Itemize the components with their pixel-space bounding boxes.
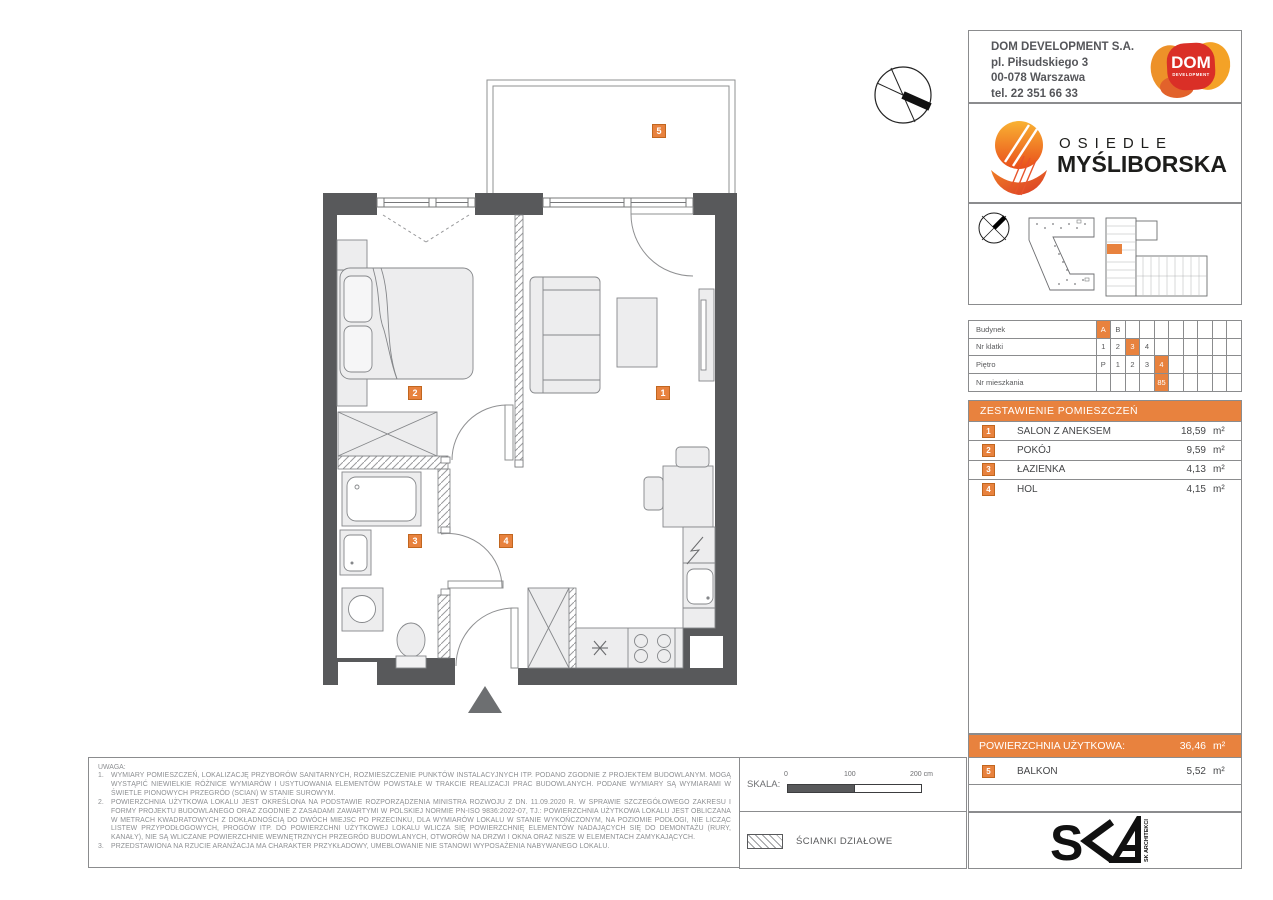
partition-hatch-swatch — [747, 834, 783, 849]
unit-table-cell — [1110, 374, 1125, 392]
unit-table-cell — [1183, 339, 1198, 356]
unit-table-cell — [1226, 374, 1241, 392]
site-unit-highlight — [1107, 244, 1122, 254]
unit-table-row-label: Piętro — [969, 360, 1096, 369]
unit-table-row-label: Nr klatki — [969, 342, 1096, 351]
unit-table-cell — [1125, 374, 1140, 392]
unit-table-cell — [1168, 339, 1183, 356]
usable-area-bar: POWIERZCHNIA UŻYTKOWA: 36,46 m² — [968, 734, 1242, 758]
unit-table-cell: 4 — [1154, 356, 1169, 373]
unit-table-cell: 2 — [1110, 339, 1125, 356]
kitchen-shaft — [690, 636, 723, 668]
floor-plan-drawing — [295, 40, 955, 740]
unit-table-cell — [1226, 321, 1241, 338]
chair — [644, 477, 663, 510]
estate-logo-box: OSIEDLE MYŚLIBORSKA — [968, 103, 1242, 203]
room-number-badge: 5 — [982, 765, 995, 778]
unit-table-cell — [1183, 356, 1198, 373]
legend-box: ŚCIANKI DZIAŁOWE — [739, 811, 967, 869]
unit-table-cell — [1212, 374, 1227, 392]
svg-text:DEVELOPMENT: DEVELOPMENT — [1172, 72, 1209, 77]
scale-tick-0: 0 — [784, 771, 788, 778]
room-area: 4,13 — [1187, 464, 1206, 475]
site-building-left — [1029, 218, 1094, 290]
unit-table-cell — [1139, 374, 1154, 392]
unit-table-cell: 3 — [1125, 339, 1140, 356]
unit-table-cell — [1139, 321, 1154, 338]
dom-development-logo: DOM DEVELOPMENT — [1145, 35, 1239, 101]
empty-panel — [968, 498, 1242, 734]
dining-table — [663, 466, 713, 527]
site-building-right — [1106, 218, 1207, 296]
unit-table-cell — [1197, 339, 1212, 356]
room-badge-2: 2 — [408, 386, 422, 400]
unit-table-cell — [1212, 321, 1227, 338]
room-number-badge: 2 — [982, 444, 995, 457]
scale-label: SKALA: — [747, 779, 780, 790]
estate-name-line1: OSIEDLE — [1059, 135, 1173, 152]
door-jambs — [441, 457, 523, 595]
unit-location-table: BudynekABNr klatki1234PiętroP1234Nr mies… — [968, 320, 1242, 392]
unit-table-cell — [1168, 374, 1183, 392]
scale-tick-100: 100 — [844, 771, 856, 778]
unit-table-cell — [1197, 356, 1212, 373]
wall-recess — [338, 662, 377, 685]
scale-tick-200: 200 cm — [910, 771, 933, 778]
unit-table-row: Nr klatki1234 — [969, 339, 1241, 357]
furniture — [337, 240, 715, 668]
room-badge-5: 5 — [652, 124, 666, 138]
unit-table-cell — [1154, 321, 1169, 338]
note-text: POWIERZCHNIA UŻYTKOWA LOKALU JEST OKREŚL… — [111, 799, 731, 844]
note-item: 3.PRZEDSTAWIONA NA RZUCIE ARANŻACJA MA C… — [98, 843, 731, 852]
room-row: 4HOL4,15m² — [969, 480, 1241, 499]
north-arrow-icon — [875, 67, 931, 123]
ska-vertical-label: SK ARCHITEKCI — [1144, 818, 1150, 861]
room-area-unit: m² — [1213, 484, 1233, 495]
note-number: 1. — [98, 772, 111, 799]
unit-table-row-label: Nr mieszkania — [969, 378, 1096, 387]
ska-logo: S SK ARCHITEKCI — [1050, 816, 1160, 866]
unit-table-cell — [1226, 339, 1241, 356]
unit-table-row: BudynekAB — [969, 321, 1241, 339]
pillow — [344, 326, 372, 372]
unit-table-cell — [1168, 356, 1183, 373]
svg-text:S: S — [1050, 816, 1083, 866]
unit-table-row-label: Budynek — [969, 325, 1096, 334]
unit-table-cell — [1197, 321, 1212, 338]
room-name: SALON Z ANEKSEM — [1017, 426, 1111, 437]
room-row: 1SALON Z ANEKSEM18,59m² — [969, 422, 1241, 441]
unit-table-cell: 1 — [1096, 339, 1111, 356]
usable-area-unit: m² — [1213, 740, 1233, 752]
developer-info-box: DOM DEVELOPMENT S.A. pl. Piłsudskiego 3 … — [968, 30, 1242, 103]
toilet — [397, 623, 425, 657]
coffee-table — [617, 298, 657, 367]
developer-address1: pl. Piłsudskiego 3 — [991, 56, 1134, 72]
room-badge-4: 4 — [499, 534, 513, 548]
notes-heading: UWAGA: — [98, 764, 731, 771]
room-row: 2POKÓJ9,59m² — [969, 441, 1241, 460]
pillow — [344, 276, 372, 322]
balcony-door — [631, 207, 693, 276]
entrance-arrow-icon — [468, 686, 502, 713]
room-name: POKÓJ — [1017, 445, 1051, 456]
estate-sun-icon — [987, 116, 1053, 200]
note-item: 2.POWIERZCHNIA UŻYTKOWA LOKALU JEST OKRE… — [98, 799, 731, 844]
balcony-outline — [487, 80, 735, 193]
room-area-unit: m² — [1213, 464, 1233, 475]
note-text: PRZEDSTAWIONA NA RZUCIE ARANŻACJA MA CHA… — [111, 843, 731, 852]
tilt-window-symbol — [383, 215, 469, 242]
room-row: 3ŁAZIENKA4,13m² — [969, 461, 1241, 480]
balcony-row: 5BALKON5,52m² — [968, 758, 1242, 785]
unit-table-cell — [1212, 339, 1227, 356]
note-text: WYMIARY POMIESZCZEŃ, LOKALIZACJĘ PRZYBOR… — [111, 772, 731, 799]
usable-area-value: 36,46 — [1180, 740, 1206, 752]
unit-table-cell — [1183, 374, 1198, 392]
unit-table-row: Nr mieszkania85 — [969, 374, 1241, 392]
usable-area-label: POWIERZCHNIA UŻYTKOWA: — [979, 740, 1125, 752]
partition-legend-label: ŚCIANKI DZIAŁOWE — [796, 836, 893, 847]
rooms-header: ZESTAWIENIE POMIESZCZEŃ — [968, 400, 1242, 422]
rooms-list: 1SALON Z ANEKSEM18,59m²2POKÓJ9,59m²3ŁAZI… — [968, 422, 1242, 499]
unit-table-cell — [1197, 374, 1212, 392]
unit-table-cell — [1154, 339, 1169, 356]
developer-address2: 00-078 Warszawa — [991, 71, 1134, 87]
developer-phone: tel. 22 351 66 33 — [991, 87, 1134, 103]
room-area-unit: m² — [1213, 445, 1233, 456]
room-area-unit: m² — [1213, 426, 1233, 437]
unit-table-cell — [1096, 374, 1111, 392]
estate-name-line2: MYŚLIBORSKA — [1057, 151, 1227, 178]
note-item: 1.WYMIARY POMIESZCZEŃ, LOKALIZACJĘ PRZYB… — [98, 772, 731, 799]
unit-table-cell: A — [1096, 321, 1111, 338]
unit-table-cell — [1168, 321, 1183, 338]
site-north-icon — [979, 213, 1009, 243]
unit-table-cell: 4 — [1139, 339, 1154, 356]
unit-table-cell — [1226, 356, 1241, 373]
unit-table-cell: B — [1110, 321, 1125, 338]
room-row: 5BALKON5,52m² — [969, 758, 1241, 784]
scale-bar-light — [854, 784, 922, 793]
chair — [676, 447, 709, 467]
unit-table-row: PiętroP1234 — [969, 356, 1241, 374]
unit-table-cell: P — [1096, 356, 1111, 373]
room-area: 9,59 — [1187, 445, 1206, 456]
room-area: 5,52 — [1187, 766, 1206, 777]
unit-table-cell: 1 — [1110, 356, 1125, 373]
scale-box: SKALA: 0 100 200 cm — [739, 757, 967, 812]
room-badge-1: 1 — [656, 386, 670, 400]
empty-panel-small — [968, 785, 1242, 812]
unit-table-cell — [1183, 321, 1198, 338]
scale-bar-dark — [787, 784, 855, 793]
notes-box: UWAGA: 1.WYMIARY POMIESZCZEŃ, LOKALIZACJ… — [88, 757, 740, 868]
unit-table-cell: 85 — [1154, 374, 1169, 392]
site-map-box — [968, 203, 1242, 305]
note-number: 2. — [98, 799, 111, 844]
unit-table-cell: 3 — [1139, 356, 1154, 373]
room-name: BALKON — [1017, 766, 1058, 777]
room-area: 18,59 — [1181, 426, 1206, 437]
room-badge-3: 3 — [408, 534, 422, 548]
note-number: 3. — [98, 843, 111, 852]
room-number-badge: 4 — [982, 483, 995, 496]
room-area: 4,15 — [1187, 484, 1206, 495]
architect-logo-box: S SK ARCHITEKCI — [968, 812, 1242, 869]
developer-name: DOM DEVELOPMENT S.A. — [991, 40, 1134, 56]
unit-table-cell — [1212, 356, 1227, 373]
room-number-badge: 1 — [982, 425, 995, 438]
unit-table-cell — [1125, 321, 1140, 338]
room-number-badge: 3 — [982, 463, 995, 476]
svg-text:DOM: DOM — [1171, 53, 1211, 72]
room-name: ŁAZIENKA — [1017, 464, 1065, 475]
room-area-unit: m² — [1213, 766, 1233, 777]
room-name: HOL — [1017, 484, 1038, 495]
unit-table-cell: 2 — [1125, 356, 1140, 373]
